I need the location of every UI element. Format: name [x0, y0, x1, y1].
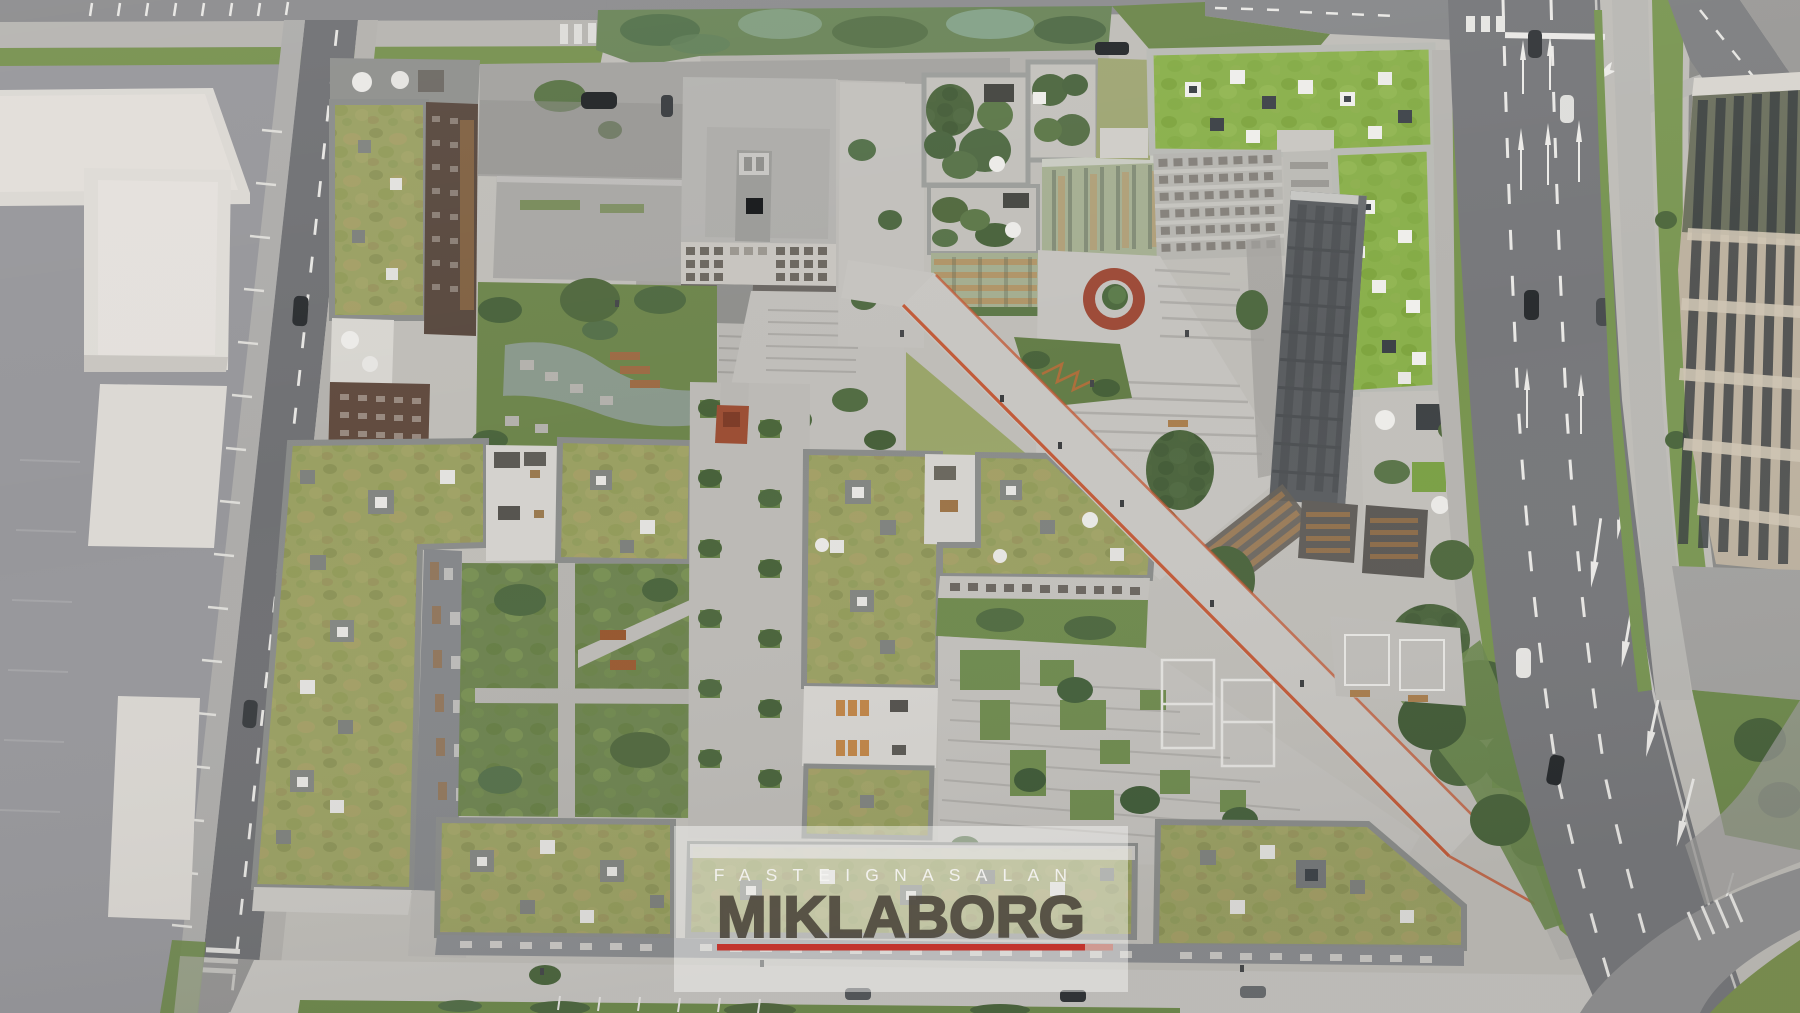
svg-text:FASTEIGNASALAN: FASTEIGNASALAN	[714, 865, 1082, 885]
svg-text:MIKLABORG: MIKLABORG	[717, 885, 1085, 950]
